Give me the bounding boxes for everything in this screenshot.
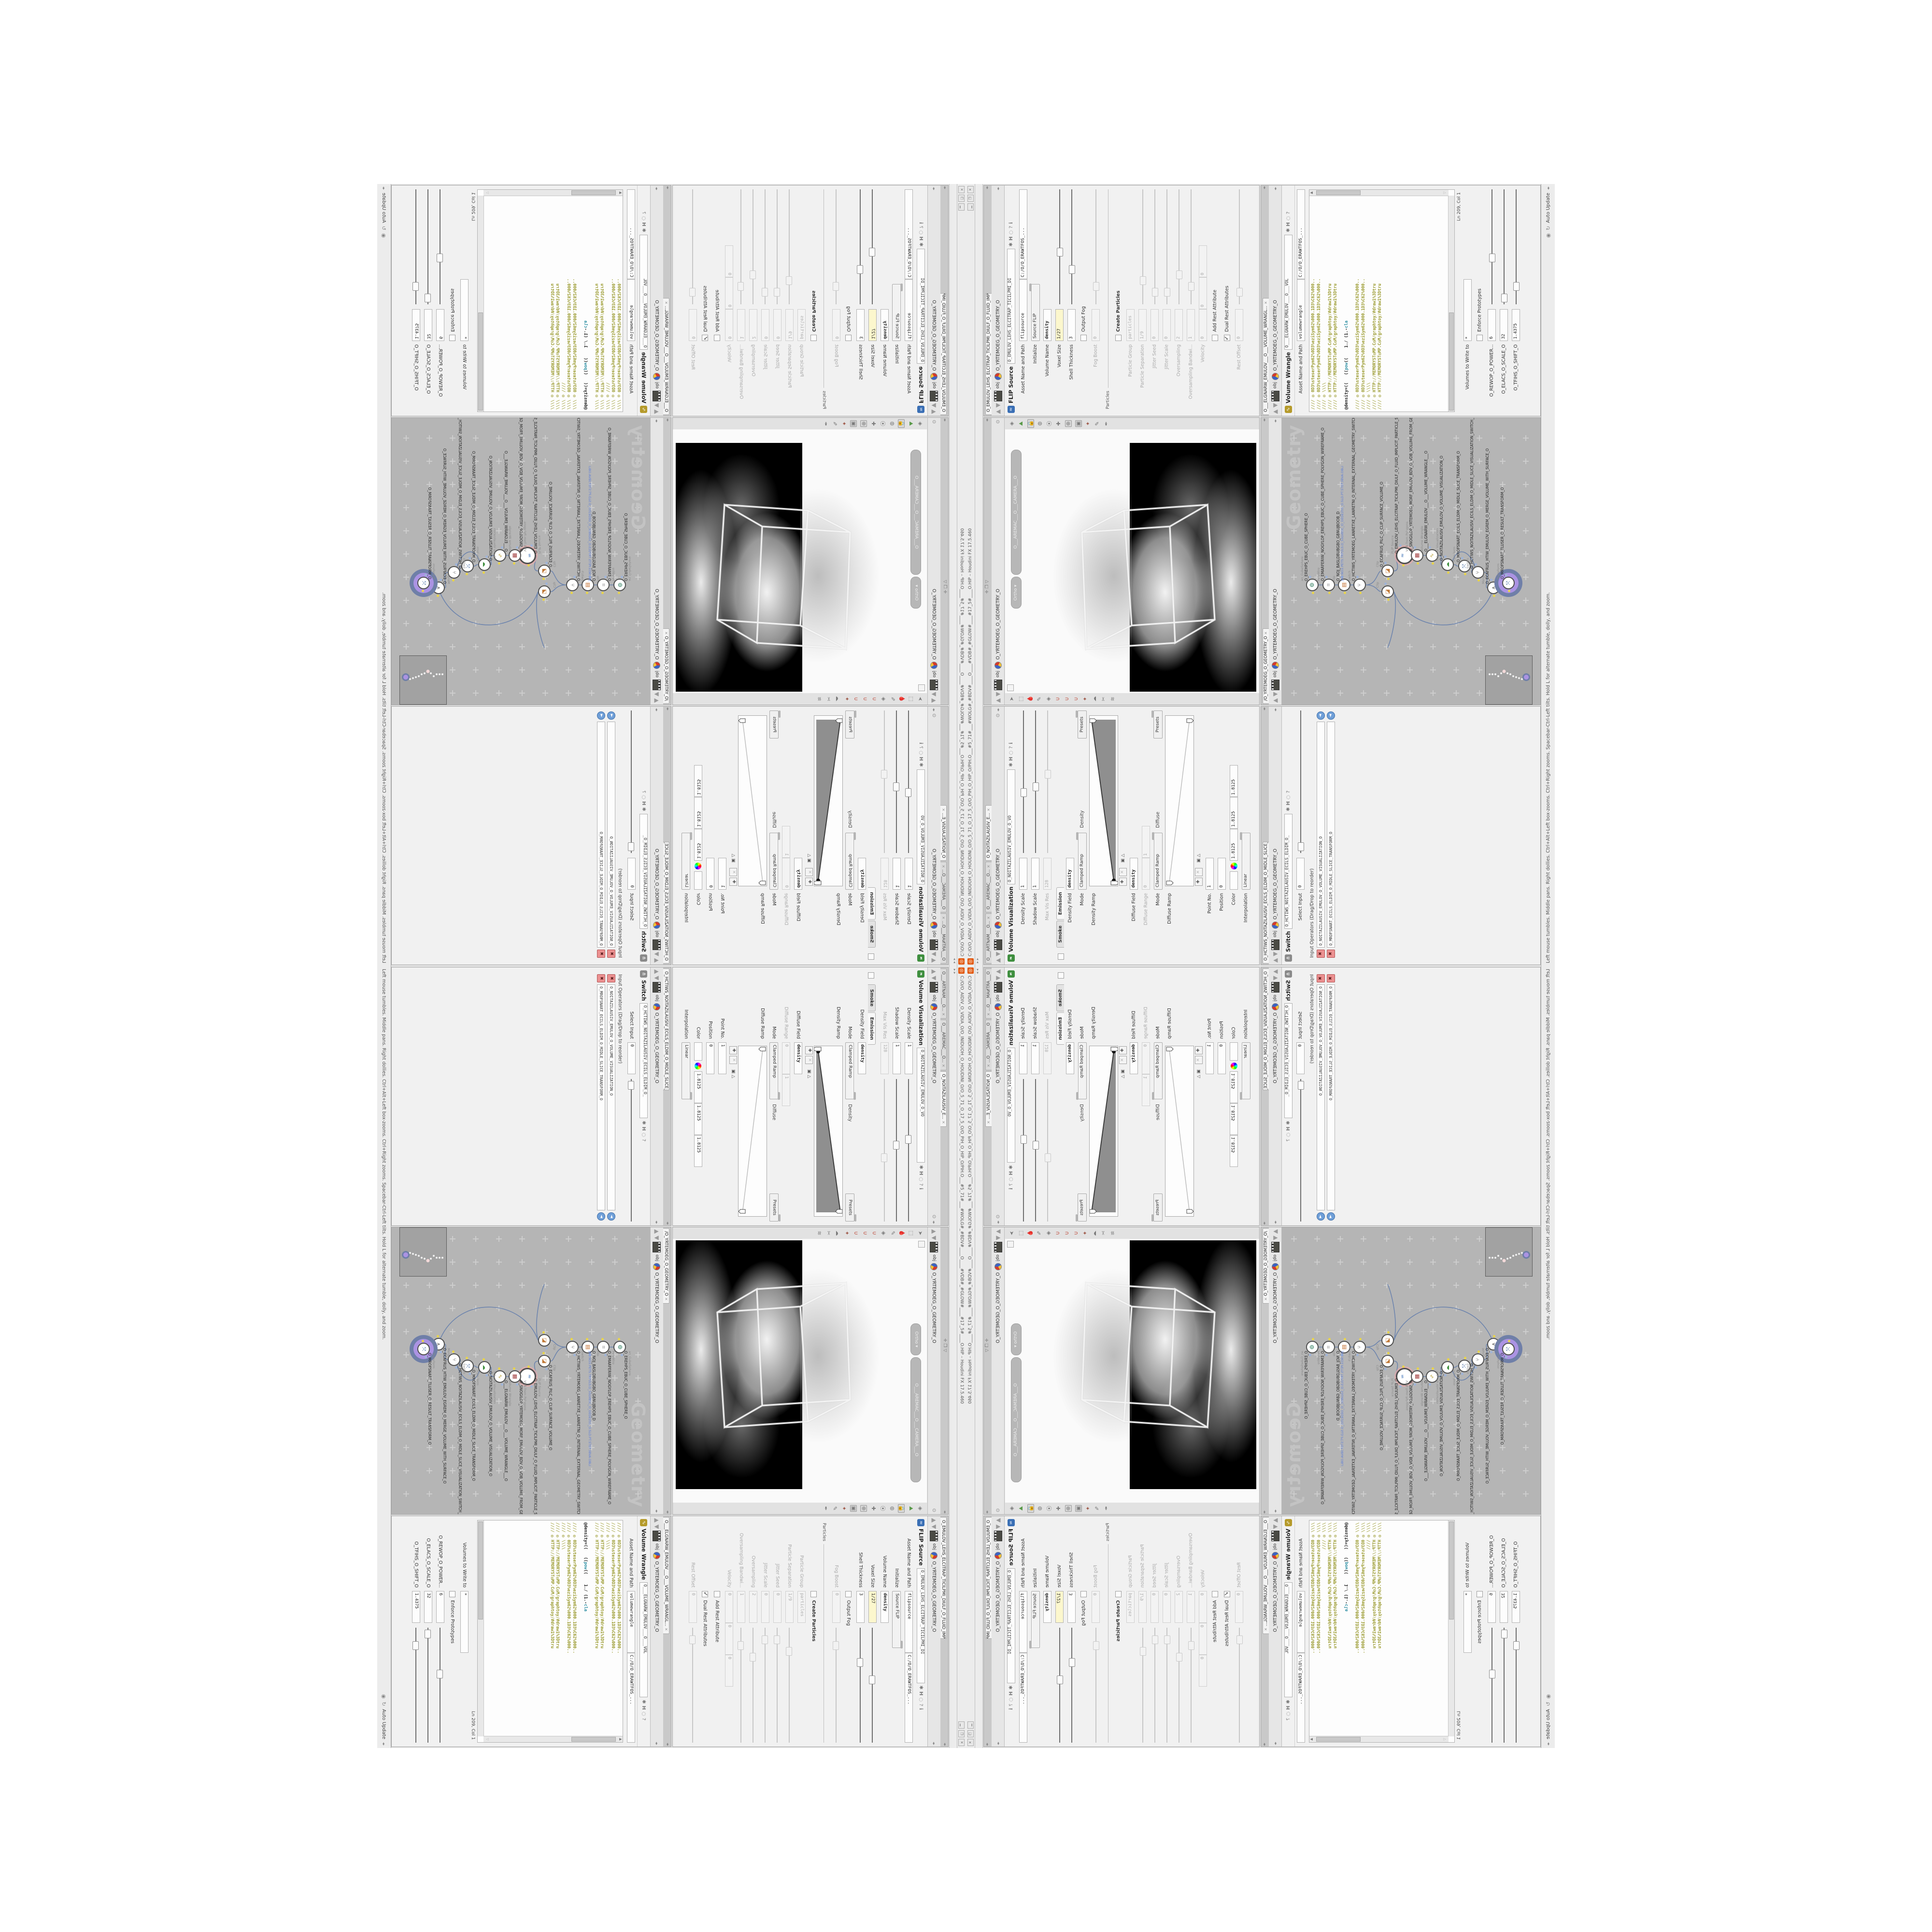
ramp-add-point-button[interactable]: ✚ xyxy=(1195,1046,1203,1054)
node-flag-icon[interactable] xyxy=(1477,579,1480,582)
pane-controls-icon[interactable]: ✛ ❐ ▽ xyxy=(985,1338,990,1352)
hda-icon[interactable]: H xyxy=(1286,1127,1291,1131)
nav-up-icon[interactable]: ▲ xyxy=(931,958,938,963)
search-icon[interactable]: ◌ xyxy=(1286,1712,1291,1716)
magnet-icon[interactable]: ∪ xyxy=(871,697,877,701)
param-slider[interactable] xyxy=(628,1079,635,1222)
node-flag-icon[interactable] xyxy=(1429,1383,1431,1386)
memory-icon[interactable]: ◉ xyxy=(381,233,387,238)
pane-arrows-icon[interactable]: ◂▸ xyxy=(1273,1221,1278,1223)
nav-down-icon[interactable]: ▼ xyxy=(931,403,938,408)
pane-tab[interactable]: O___ARTNAM___O...× xyxy=(940,913,947,964)
param-slider[interactable] xyxy=(894,1079,900,1222)
remove-input-button[interactable]: ✖ xyxy=(597,950,605,958)
node-flag-icon[interactable] xyxy=(501,546,503,549)
param-dropdown[interactable]: Clamped Ramp xyxy=(846,1042,854,1099)
node-flag-icon[interactable] xyxy=(440,579,442,581)
node-flag-icon[interactable] xyxy=(1429,546,1431,549)
jump-to-node-button[interactable]: ◄ xyxy=(1327,1212,1335,1221)
folder-tab[interactable]: Emission xyxy=(1056,1012,1064,1045)
obj-context-icon[interactable] xyxy=(994,939,1002,950)
nav-down-icon[interactable]: ▼ xyxy=(994,952,1001,956)
obj-context-icon[interactable] xyxy=(994,1531,1002,1541)
input-operator-field[interactable]: O_NOITAZILAUSIV_EMULOV_O_VOLUME_VISUALIZ… xyxy=(607,722,615,948)
param-field[interactable]: 32 xyxy=(1500,309,1508,341)
terrain-icon[interactable]: ⛰ xyxy=(1018,421,1024,426)
param-field[interactable]: 1.4375 xyxy=(412,309,420,341)
node-flag-icon[interactable] xyxy=(1387,578,1390,580)
param-field[interactable]: 1 xyxy=(1019,1042,1027,1074)
param-field[interactable]: 0 xyxy=(1142,1042,1150,1074)
pen-icon[interactable]: ✒ xyxy=(1104,421,1109,426)
node-flag-icon[interactable] xyxy=(545,582,548,585)
ramp-delete-point-button[interactable]: ✕ xyxy=(729,1056,737,1064)
param-field[interactable]: volumewrangle xyxy=(627,1591,635,1653)
camera-pill[interactable]: O___AREMAC___O___CAMERA___O xyxy=(910,1357,921,1482)
brush-icon[interactable]: ✎ xyxy=(1037,696,1042,701)
param-field[interactable]: density xyxy=(1066,1042,1074,1074)
search-icon[interactable]: ◌ xyxy=(641,216,647,220)
gear-icon[interactable]: ✱ xyxy=(1009,763,1014,767)
checkbox[interactable] xyxy=(810,1591,817,1597)
param-field[interactable]: 0 xyxy=(725,1655,733,1687)
remove-input-button[interactable]: ✖ xyxy=(607,950,615,958)
param-field[interactable]: 0 xyxy=(1218,1042,1226,1074)
pane-arrows-icon[interactable]: ◂▸ xyxy=(943,1743,947,1746)
checkbox[interactable] xyxy=(1477,1591,1483,1597)
node-flag-icon[interactable] xyxy=(586,1338,588,1340)
terrain-icon[interactable]: ⛰ xyxy=(908,421,914,426)
viewport-expand-icon[interactable] xyxy=(918,1241,925,1248)
node-flag-icon[interactable] xyxy=(1505,1356,1507,1358)
breadcrumb[interactable]: O_YRTEMOEG_O_GEOMETRY_O xyxy=(995,1561,1001,1740)
smooth-icon[interactable]: ☁ xyxy=(1092,1231,1097,1236)
obj-context-icon[interactable] xyxy=(994,680,1002,690)
sculpt-icon[interactable]: ✦ xyxy=(1085,421,1091,426)
paint-bucket-icon[interactable]: 🩸 xyxy=(1027,1230,1033,1236)
checkbox[interactable] xyxy=(845,1591,852,1597)
nav-up-icon[interactable]: ▲ xyxy=(994,1229,1001,1234)
network-node[interactable]: ☁Volume VisualizationO_NOITAZILAUSIV_EMU… xyxy=(478,558,491,571)
param-dropdown[interactable]: Clamped Ramp xyxy=(846,833,854,890)
node-name-field[interactable]: O_HCTIWS_NOITAZILAUSIV_ECILS_ELDIM_O_ xyxy=(640,1003,648,1118)
pane-arrows-icon[interactable]: ◂▸ xyxy=(666,1222,670,1224)
ramp-delete-point-button[interactable]: ✕ xyxy=(1195,868,1203,876)
param-field[interactable]: 32 xyxy=(424,1591,432,1623)
node-name-field[interactable]: O_HCTIWS_NOITAZILAUSIV_ECILS_ELDIM_O_ xyxy=(640,814,648,929)
color-swatch[interactable] xyxy=(694,871,702,890)
obj-context-icon[interactable] xyxy=(1271,1242,1279,1252)
nav-down-icon[interactable]: ▼ xyxy=(994,403,1001,408)
param-field[interactable]: 1 xyxy=(1206,1042,1214,1074)
param-field[interactable]: C:/O/O_ERAWTFOS_... xyxy=(1297,1653,1305,1743)
cam-box-icon[interactable]: ▣ xyxy=(850,420,857,427)
knife-icon[interactable]: ✂ xyxy=(1101,1231,1107,1235)
param-slider[interactable] xyxy=(1164,189,1170,304)
viewport-expand-icon[interactable] xyxy=(1007,684,1014,691)
pane-arrows-icon[interactable]: ◂▸ xyxy=(996,1742,1000,1745)
checkbox[interactable] xyxy=(1224,1591,1230,1597)
pane-arrows-icon[interactable]: ◂▸ xyxy=(1262,1222,1266,1224)
node-name-field[interactable]: O_EMULOV_LEHS_ELCITRAP_TICILPMI_DI xyxy=(1007,1568,1015,1683)
pane-controls-icon[interactable]: ✛ ❐ ▽ xyxy=(985,580,990,594)
param-field[interactable]: 1 xyxy=(782,1074,790,1106)
checkbox[interactable] xyxy=(810,335,817,341)
network-minimap[interactable] xyxy=(399,1227,447,1277)
comb-icon[interactable]: ≋ xyxy=(816,696,822,701)
network-node[interactable]: ◪Clip xyxy=(538,1334,551,1347)
sculpt-icon[interactable]: ✦ xyxy=(1085,1506,1091,1510)
lamp-icon[interactable]: ⦿ xyxy=(1047,421,1052,426)
param-field[interactable]: 0 xyxy=(1235,309,1243,341)
search-icon[interactable]: ◌ xyxy=(1009,230,1014,235)
ramp-add-point-button[interactable]: ✚ xyxy=(729,878,737,886)
context-label[interactable]: obj xyxy=(1273,671,1278,678)
pane-arrows-icon[interactable]: ◂▸ xyxy=(1262,419,1266,422)
node-flag-icon[interactable] xyxy=(485,1374,488,1377)
checkbox[interactable] xyxy=(1224,335,1230,341)
info-icon[interactable]: ℹ xyxy=(1009,742,1014,744)
node-flag-icon[interactable] xyxy=(469,1373,471,1375)
network-node[interactable]: ⑂SwitchO_HCTIWS_YRTEMOEG_LANRETXE_LANRET… xyxy=(1353,1341,1366,1353)
remove-input-button[interactable]: ✖ xyxy=(607,974,615,982)
param-field[interactable]: density xyxy=(1130,1042,1138,1074)
hda-icon[interactable]: H xyxy=(1009,757,1014,761)
param-dropdown[interactable]: Clamped Ramp xyxy=(1078,1042,1087,1099)
input-operator-field[interactable]: O_MROFSNART_ECILS_ELDIM_O_MIDLE_SLICE_TR… xyxy=(1327,984,1335,1210)
pin-icon[interactable]: ⊙ xyxy=(932,1508,937,1512)
code-vertical-scrollbar[interactable]: ▲▽ xyxy=(1309,190,1449,196)
obj-context-icon[interactable] xyxy=(930,391,938,401)
hda-icon[interactable]: H xyxy=(641,801,647,805)
param-field[interactable]: density xyxy=(1043,1591,1051,1623)
param-field[interactable]: density xyxy=(794,1042,802,1074)
vex-code-editor[interactable]: //// ◎ 0D3%steserPym62%0D3%eziSym62%000.… xyxy=(1309,189,1455,412)
node-flag-icon[interactable] xyxy=(1447,1358,1449,1361)
brush-icon[interactable]: ✎ xyxy=(890,1231,895,1235)
tab-close-icon[interactable]: × xyxy=(986,1012,991,1016)
node-flag-icon[interactable] xyxy=(1356,1354,1359,1356)
close-button[interactable]: ✕ xyxy=(967,186,974,193)
param-field[interactable]: 0 xyxy=(1218,858,1226,890)
param-field[interactable]: 1.4375 xyxy=(1512,309,1520,341)
nav-up-icon[interactable]: ▲ xyxy=(1272,698,1279,703)
lamp-add-icon[interactable]: ✚ xyxy=(1056,1506,1062,1510)
cam-box-icon[interactable]: ▣ xyxy=(850,1505,857,1512)
node-flag-icon[interactable] xyxy=(466,573,468,575)
lock-icon[interactable]: 🔒 xyxy=(898,1504,905,1513)
remove-input-button[interactable]: ✖ xyxy=(1327,950,1335,958)
magnet-icon[interactable]: ∪ xyxy=(1064,697,1070,701)
presets-button[interactable]: Presets xyxy=(1078,1193,1087,1222)
node-flag-icon[interactable] xyxy=(1477,1350,1480,1353)
breadcrumb[interactable]: O_YRTEMOEG_O_GEOMETRY_O xyxy=(932,719,937,919)
context-label[interactable]: obj xyxy=(654,1543,659,1550)
network-node[interactable]: ◪ClipO_ECAFRUS_PILC_O_CLIP_SURFACE_VOLUM… xyxy=(538,1355,551,1367)
param-field[interactable]: 1.4375 xyxy=(412,1591,420,1623)
param-slider[interactable] xyxy=(833,189,840,304)
context-label[interactable]: obj xyxy=(995,1543,1000,1550)
node-flag-icon[interactable] xyxy=(498,1367,500,1370)
diamond-icon[interactable]: ◈ xyxy=(881,1231,886,1235)
checkbox[interactable] xyxy=(702,335,708,341)
help-icon[interactable]: ? xyxy=(1009,226,1014,228)
checkbox[interactable] xyxy=(1058,953,1064,960)
input-operator-field[interactable]: O_NOITAZILAUSIV_EMULOV_O_VOLUME_VISUALIZ… xyxy=(1317,984,1325,1210)
lamp-add-icon[interactable]: ✚ xyxy=(1056,421,1062,426)
param-dropdown[interactable]: Clamped Ramp xyxy=(1154,1042,1163,1099)
network-minimap[interactable] xyxy=(399,655,447,705)
hda-icon[interactable]: H xyxy=(1286,801,1291,805)
select-icon[interactable]: ➤ xyxy=(917,696,923,701)
pane-arrows-icon[interactable]: ◂▸ xyxy=(666,708,670,710)
pane-arrows-icon[interactable]: ◂▸ xyxy=(1262,1510,1266,1513)
help-icon[interactable]: ? xyxy=(919,226,924,228)
param-slider[interactable] xyxy=(833,1628,840,1743)
gear-icon[interactable]: ✱ xyxy=(919,242,924,246)
param-dropdown[interactable]: Source FLIP xyxy=(1031,284,1040,341)
pane-arrows-icon[interactable]: ◂▸ xyxy=(1546,1742,1550,1745)
node-flag-icon[interactable] xyxy=(1417,1367,1419,1370)
lamp-icon[interactable]: ⦿ xyxy=(880,1506,885,1511)
param-slider[interactable] xyxy=(1176,189,1182,304)
param-field[interactable]: 1 xyxy=(1019,858,1027,890)
param-slider[interactable] xyxy=(1501,1628,1507,1743)
viewport-canvas[interactable]: Ortho ▾ O___AREMAC___O___CAMERA___O xyxy=(1005,429,1259,693)
pane-tab[interactable]: O___ELGNARW_EMULOV___O___VOLUME_WRANGL..… xyxy=(663,1517,669,1634)
breadcrumb[interactable]: O_YRTEMOEG_O_GEOMETRY_O xyxy=(1273,1012,1278,1219)
help-icon[interactable]: ? xyxy=(919,746,924,749)
nav-up-icon[interactable]: ▲ xyxy=(1272,969,1279,974)
pane-arrows-icon[interactable]: ◂▸ xyxy=(1273,420,1278,423)
param-slider[interactable] xyxy=(690,1628,696,1743)
nav-up-icon[interactable]: ▲ xyxy=(994,410,1001,414)
param-dropdown[interactable]: Source FLIP xyxy=(1031,1591,1040,1648)
jump-to-node-button[interactable]: ◄ xyxy=(1327,711,1335,720)
param-field[interactable]: 2 xyxy=(1175,309,1183,341)
param-field[interactable]: 0 xyxy=(1199,309,1207,341)
magnet-icon[interactable]: ∪ xyxy=(853,1231,859,1235)
tab-close-icon[interactable]: × xyxy=(941,1012,946,1016)
box-select-icon[interactable]: ⬚ xyxy=(908,1231,914,1236)
param-field[interactable]: 1/9 xyxy=(1138,309,1147,341)
node-name-field[interactable]: O_NOITAZILAUSIV_EMULOV_O_VO xyxy=(1007,769,1015,884)
param-slider[interactable] xyxy=(628,710,635,853)
magnet-icon[interactable]: ∪ xyxy=(853,697,859,701)
param-slider[interactable] xyxy=(1513,1628,1520,1743)
node-name-field[interactable]: O_HCTIWS_NOITAZILAUSIV_ECILS_ELDIM_O_ xyxy=(1284,814,1293,929)
param-field[interactable]: 0 xyxy=(1092,309,1100,341)
nav-down-icon[interactable]: ▼ xyxy=(653,976,660,980)
param-slider[interactable] xyxy=(738,189,745,304)
memory-icon[interactable]: ◉ xyxy=(1545,233,1551,238)
checkbox[interactable] xyxy=(845,335,852,341)
param-field[interactable]: 0 xyxy=(1163,309,1171,341)
network-canvas[interactable]: Geometry 🜨an_CubeSphereO_EREH xyxy=(392,418,650,705)
node-flag-icon[interactable] xyxy=(1325,1354,1328,1356)
breadcrumb[interactable]: O_YRTEMOEG_O_GEOMETRY_O xyxy=(654,1012,660,1219)
obj-context-icon[interactable] xyxy=(994,982,1002,993)
param-field[interactable]: density xyxy=(1043,309,1051,341)
network-node[interactable]: ⑂SwitchO_HCTIWS_YRTEMOEG_LANRETXE_LANRET… xyxy=(566,579,579,591)
node-flag-icon[interactable] xyxy=(1475,563,1477,566)
param-field[interactable]: 1 xyxy=(1187,309,1195,341)
obj-context-icon[interactable] xyxy=(1271,1531,1279,1541)
nav-up-icon[interactable]: ▲ xyxy=(1272,1229,1279,1234)
param-field[interactable]: 0 xyxy=(1199,245,1207,277)
param-field[interactable]: C:/O/O_ERAWTFOS_... xyxy=(905,189,913,279)
breadcrumb[interactable]: O_YRTEMOEG_O_GEOMETRY_O xyxy=(995,1012,1001,1212)
search-icon[interactable]: ◌ xyxy=(919,1697,924,1702)
param-slider[interactable] xyxy=(738,1628,745,1743)
context-label[interactable]: obj xyxy=(932,382,937,389)
gear-icon[interactable]: ✱ xyxy=(1286,807,1291,811)
breadcrumb[interactable]: O_YRTEMOEG_O_GEOMETRY_O xyxy=(932,426,937,659)
minimize-button[interactable]: ▁ xyxy=(959,203,965,211)
param-field[interactable]: 1 xyxy=(1142,1074,1150,1106)
node-name-field[interactable]: O_NOITAZILAUSIV_EMULOV_O_VO xyxy=(917,769,925,884)
pin-icon[interactable]: ⊙ xyxy=(995,1215,1001,1219)
search-icon[interactable]: ◌ xyxy=(641,1712,647,1716)
remove-input-button[interactable]: ✖ xyxy=(1317,950,1325,958)
node-flag-icon[interactable] xyxy=(1328,1338,1331,1340)
nav-down-icon[interactable]: ▼ xyxy=(931,1236,938,1240)
vex-code-editor[interactable]: //// ◎ 0D3%steserPym62%0D3%eziSym62%000.… xyxy=(1309,1520,1455,1743)
node-flag-icon[interactable] xyxy=(1387,1331,1390,1334)
param-slider[interactable] xyxy=(1188,189,1194,304)
node-name-field[interactable]: O___ELGNARW_EMULOV___O___VOL xyxy=(640,235,648,350)
param-field[interactable]: 128 xyxy=(881,858,889,890)
tab-close-icon[interactable]: × xyxy=(1264,301,1268,304)
pane-controls-icon[interactable]: ✛ ❐ ▽ xyxy=(942,580,947,594)
obj-context-icon[interactable] xyxy=(653,1242,661,1252)
node-name-field[interactable]: O_HCTIWS_NOITAZILAUSIV_ECILS_ELDIM_O_ xyxy=(1284,1003,1293,1118)
param-field[interactable]: 0 xyxy=(725,309,733,341)
breadcrumb[interactable]: O_YRTEMOEG_O_GEOMETRY_O xyxy=(1273,425,1278,660)
smooth-icon[interactable]: ☁ xyxy=(835,696,840,702)
param-field[interactable]: C:/O/O_ERAWTFOS_... xyxy=(627,1653,635,1743)
magnet-icon[interactable]: ∪ xyxy=(1055,697,1061,701)
node-flag-icon[interactable] xyxy=(422,1340,424,1342)
nav-down-icon[interactable]: ▼ xyxy=(1272,692,1279,696)
knife-icon[interactable]: ✂ xyxy=(825,1231,831,1235)
node-flag-icon[interactable] xyxy=(1344,1338,1346,1340)
param-field[interactable]: 1 xyxy=(718,1042,726,1074)
node-flag-icon[interactable] xyxy=(1475,1366,1477,1369)
magnet-icon[interactable]: ∪ xyxy=(862,697,868,701)
param-field[interactable]: 1.4375 xyxy=(1512,1591,1520,1623)
node-flag-icon[interactable] xyxy=(498,562,500,565)
network-node[interactable]: ⤧TransformO_MROFSNART_TLUSER_O_RESULT_TR… xyxy=(1502,1343,1515,1355)
camera-pill[interactable]: O___AREMAC___O___CAMERA___O xyxy=(910,450,921,575)
breadcrumb[interactable]: O_YRTEMOEG_O_GEOMETRY_O xyxy=(654,1272,660,1507)
node-flag-icon[interactable] xyxy=(483,1358,485,1361)
node-flag-icon[interactable] xyxy=(1384,582,1387,585)
gear-icon[interactable]: ✱ xyxy=(919,1686,924,1690)
node-flag-icon[interactable] xyxy=(545,562,548,564)
network-canvas[interactable]: Geometry 🜨an_CubeSphereO_EREH xyxy=(1282,418,1540,705)
breadcrumb[interactable]: O_YRTEMOEG_O_GEOMETRY_O xyxy=(654,425,660,660)
nav-down-icon[interactable]: ▼ xyxy=(931,976,938,980)
camera-pill[interactable]: O___AREMAC___O___CAMERA___O xyxy=(1011,1357,1022,1482)
breadcrumb[interactable]: O_YRTEMOEG_O_GEOMETRY_O xyxy=(654,192,660,371)
pane-tab[interactable]: /O_YRTEMOEG_O_GEOMETRY_O× xyxy=(663,1228,669,1304)
sculpt-icon[interactable]: ✦ xyxy=(1082,1231,1088,1235)
search-icon[interactable]: ◌ xyxy=(1009,751,1014,755)
info-icon[interactable]: ℹ xyxy=(919,742,924,744)
pane-arrows-icon[interactable]: ◂▸ xyxy=(382,187,386,190)
density-ramp-widget[interactable] xyxy=(1089,710,1118,886)
context-label[interactable]: obj xyxy=(654,1254,659,1261)
param-field[interactable]: 3 xyxy=(856,1591,865,1623)
box-select-icon[interactable]: ⬚ xyxy=(1018,696,1024,701)
pane-arrows-icon[interactable]: ◂▸ xyxy=(655,420,659,423)
pane-arrows-icon[interactable]: ◂▸ xyxy=(655,1509,659,1512)
param-field[interactable]: 128 xyxy=(1043,1042,1051,1074)
node-name-field[interactable]: O_EMULOV_LEHS_ELCITRAP_TICILPMI_DI xyxy=(917,1568,925,1683)
select-icon[interactable]: ➤ xyxy=(917,1231,923,1235)
param-slider[interactable] xyxy=(750,1628,757,1743)
context-label[interactable]: obj xyxy=(932,994,937,1001)
paint-bucket-icon[interactable]: 🩸 xyxy=(899,696,905,702)
pin-icon[interactable]: ⊙ xyxy=(995,1508,1001,1512)
obj-context-icon[interactable] xyxy=(653,982,661,993)
zoom-box-icon[interactable]: ⊕ xyxy=(860,420,867,426)
cook-mode-label[interactable]: Auto Update xyxy=(1546,1709,1551,1739)
param-field[interactable]: 6 xyxy=(436,309,444,341)
node-flag-icon[interactable] xyxy=(455,563,457,566)
window-titlebar[interactable]: ◎ C:/O/O_AIDIV_O_VIDIA_O/O_INIDUOH_O_HOU… xyxy=(957,966,966,1748)
param-field[interactable]: 0 xyxy=(1199,1623,1207,1655)
tab-close-icon[interactable]: × xyxy=(941,865,946,868)
network-node[interactable]: ⤧TransformO_MROFSNART_TLUSER_O_RESULT_TR… xyxy=(417,577,430,589)
presets-button[interactable]: Presets xyxy=(1078,710,1087,739)
checkbox[interactable] xyxy=(1212,1591,1218,1597)
gear-icon[interactable]: ✱ xyxy=(641,1700,647,1704)
input-operator-field[interactable]: O_MROFSNART_ECILS_ELDIM_O_MIDLE_SLICE_TR… xyxy=(597,722,605,948)
folder-tab[interactable]: Smoke xyxy=(868,984,876,1011)
help-icon[interactable]: ? xyxy=(1009,1704,1014,1706)
pen-icon[interactable]: ✒ xyxy=(1104,1506,1109,1510)
breadcrumb[interactable]: O_YRTEMOEG_O_GEOMETRY_O xyxy=(1273,713,1278,920)
gear-icon[interactable]: ✱ xyxy=(919,1165,924,1169)
param-dropdown[interactable]: Clamped Ramp xyxy=(1078,833,1087,890)
checkbox[interactable] xyxy=(1477,335,1483,341)
param-field[interactable]: 2 xyxy=(749,309,757,341)
lamp-icon[interactable]: ⦿ xyxy=(880,421,885,426)
gear-icon[interactable]: ✱ xyxy=(1009,1686,1014,1690)
help-icon[interactable]: ? xyxy=(641,791,647,793)
tab-close-icon[interactable]: × xyxy=(986,808,991,811)
param-dropdown[interactable]: Clamped Ramp xyxy=(770,833,779,890)
nav-down-icon[interactable]: ▼ xyxy=(994,692,1001,696)
gear-icon[interactable]: ✱ xyxy=(1286,1700,1291,1704)
param-slider[interactable] xyxy=(1151,1628,1158,1743)
help-icon[interactable]: ? xyxy=(641,1718,647,1720)
zoom-box-icon[interactable]: ⊕ xyxy=(1065,420,1072,426)
node-flag-icon[interactable] xyxy=(1325,576,1328,578)
node-name-field[interactable]: O_EMULOV_LEHS_ELCITRAP_TICILPMI_DI xyxy=(1007,249,1015,364)
obj-context-icon[interactable] xyxy=(930,1242,938,1252)
nav-up-icon[interactable]: ▲ xyxy=(653,410,660,414)
smooth-icon[interactable]: ☁ xyxy=(1092,696,1097,702)
node-flag-icon[interactable] xyxy=(1414,546,1416,549)
pin-icon[interactable]: ⊙ xyxy=(932,420,937,424)
param-field[interactable]: 0 xyxy=(1142,858,1150,890)
pane-arrows-icon[interactable]: ◂▸ xyxy=(655,709,659,711)
param-slider[interactable] xyxy=(774,189,781,304)
menu-bar[interactable]: ▸ ▸ xyxy=(949,184,957,966)
